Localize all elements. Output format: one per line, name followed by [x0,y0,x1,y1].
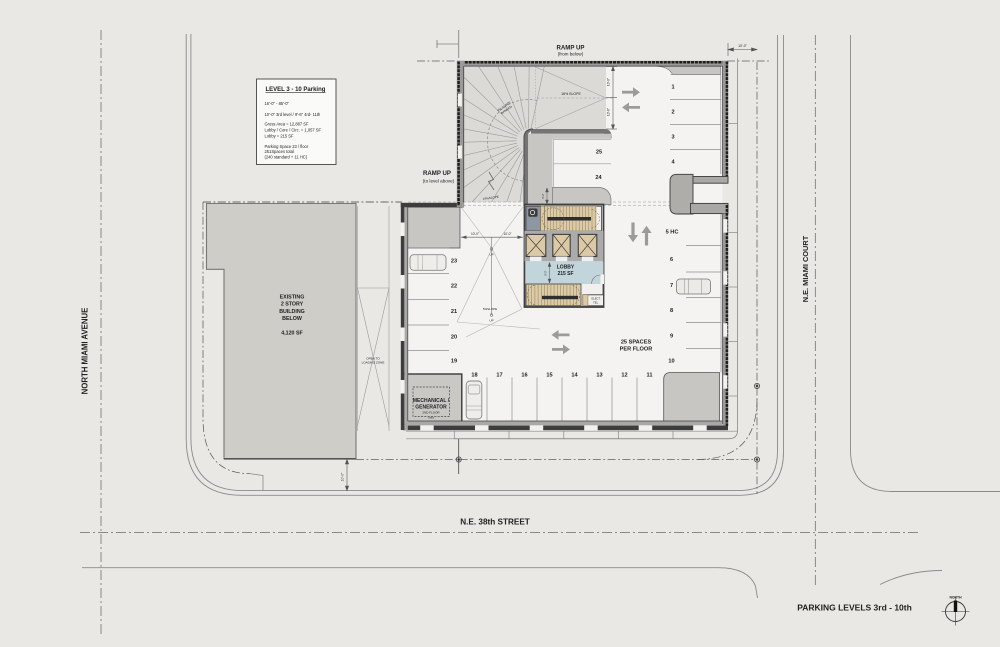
svg-text:8: 8 [670,308,673,314]
svg-text:251Spaces total: 251Spaces total [265,149,294,154]
svg-text:10: 10 [668,359,674,365]
svg-text:LOADING ZONE: LOADING ZONE [362,361,385,365]
svg-text:BELOW: BELOW [282,316,302,322]
svg-text:23: 23 [451,259,457,265]
svg-text:5 HC: 5 HC [666,230,679,236]
svg-text:25: 25 [596,150,602,156]
svg-text:GENERATOR: GENERATOR [415,404,447,410]
svg-text:UP: UP [489,253,493,257]
svg-text:Gross Area = 12,887 SF: Gross Area = 12,887 SF [265,121,310,126]
svg-text:EXISTING: EXISTING [280,295,305,301]
svg-text:9'-2": 9'-2" [544,270,548,275]
svg-text:LOBBY: LOBBY [557,265,575,271]
svg-text:24: 24 [595,175,602,181]
svg-text:15: 15 [546,373,552,379]
svg-text:10'-6": 10'-6" [607,108,611,116]
svg-text:4,120 SF: 4,120 SF [281,331,303,337]
svg-text:(240 standard + 11 HC): (240 standard + 11 HC) [265,155,308,160]
svg-text:5%SLOPE: 5%SLOPE [483,307,497,311]
svg-text:1: 1 [671,85,674,91]
svg-text:2 STORY: 2 STORY [281,302,304,308]
svg-text:9'-2": 9'-2" [541,193,545,198]
svg-text:11: 11 [647,373,653,379]
svg-text:16% SLOPE: 16% SLOPE [561,92,581,96]
svg-text:PER FLOOR: PER FLOOR [620,347,653,353]
svg-text:RAMP UP: RAMP UP [557,44,585,51]
svg-text:10'-0": 10'-0" [471,232,479,236]
svg-text:RAMP UP: RAMP UP [423,170,451,177]
svg-text:9: 9 [670,334,673,340]
svg-text:21: 21 [451,309,457,315]
svg-text:N.E. 38th STREET: N.E. 38th STREET [460,518,530,527]
svg-text:UP: UP [489,319,493,323]
svg-text:10'-0": 10'-0" [503,232,511,236]
svg-text:6: 6 [670,257,673,263]
svg-text:16'-0" - 85'-0": 16'-0" - 85'-0" [265,101,290,106]
svg-text:20: 20 [451,335,457,341]
svg-text:7: 7 [670,283,673,289]
svg-text:ELECT.: ELECT. [591,297,600,301]
svg-text:PARKING LEVELS 3rd - 10th: PARKING LEVELS 3rd - 10th [797,603,912,613]
svg-text:BUILDING: BUILDING [279,309,305,315]
svg-text:Lobby / Core / Circ. = 1,057 S: Lobby / Core / Circ. = 1,057 SF [265,127,322,132]
svg-text:N.E. MIAMI COURT: N.E. MIAMI COURT [801,235,810,302]
svg-text:14: 14 [571,373,578,379]
svg-text:TEL.: TEL. [593,300,599,304]
svg-text:13: 13 [596,373,602,379]
svg-text:16: 16 [521,373,527,379]
svg-text:10'-0" 3rd level / 9'-6" 4rd: 10'-0" 3rd level / 9'-6" 4rd- 11th [265,112,322,117]
svg-text:10'-0": 10'-0" [341,472,345,481]
svg-text:18: 18 [471,373,477,379]
svg-text:17: 17 [496,373,502,379]
svg-text:22: 22 [451,284,457,290]
svg-text:(from below): (from below) [558,52,584,57]
svg-text:2: 2 [671,110,674,116]
svg-text:NORTH MIAMI AVENUE: NORTH MIAMI AVENUE [81,308,90,395]
svg-text:MECHANICAL /: MECHANICAL / [413,398,450,404]
svg-text:LEVEL 3 - 10 Parking: LEVEL 3 - 10 Parking [266,87,326,93]
svg-text:19: 19 [451,359,457,365]
svg-text:2ND FLOOR: 2ND FLOOR [422,411,440,415]
svg-text:(T580): (T580) [428,418,435,420]
svg-text:10'-0": 10'-0" [607,78,611,86]
svg-text:3: 3 [671,135,674,141]
svg-text:Lobby = 215 SF: Lobby = 215 SF [265,133,295,138]
svg-text:25 SPACES: 25 SPACES [621,340,652,346]
svg-text:(to level above): (to level above) [423,178,455,183]
svg-text:12: 12 [621,373,627,379]
svg-text:NORTH: NORTH [949,596,962,600]
svg-text:10'-0": 10'-0" [738,44,747,48]
svg-text:215 SF: 215 SF [557,271,573,277]
